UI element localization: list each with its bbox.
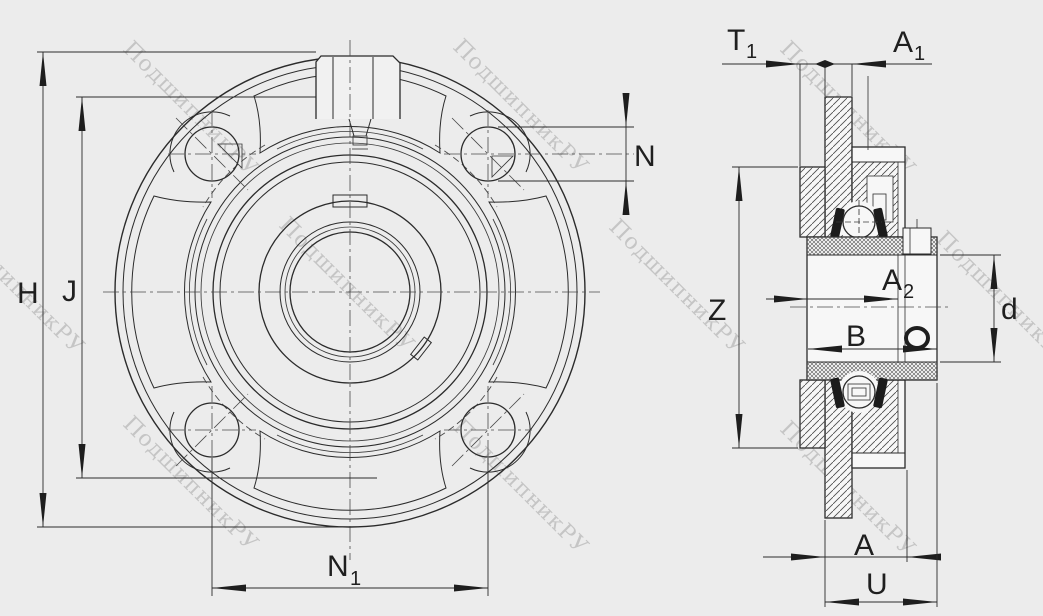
dim-label-A1: A: [893, 26, 913, 59]
dim-label-N1: N: [327, 550, 349, 583]
dim-label-A: A: [854, 529, 874, 562]
watermark-text: ПодшипникРУ: [448, 35, 593, 180]
watermark-text: ПодшипникРУ: [118, 412, 263, 557]
dim-label-U: U: [866, 568, 888, 601]
watermark-text: ПодшипникРУ: [448, 415, 593, 560]
watermark-text: ПодшипникРУ: [604, 215, 749, 360]
chamfer-mark: [492, 156, 513, 177]
dim-label-H: H: [17, 277, 39, 310]
set-screw-collar: [903, 228, 931, 254]
dim-label-T1-sub: 1: [746, 41, 757, 63]
dim-label-d: d: [1001, 293, 1018, 326]
dim-label-J: J: [62, 275, 77, 308]
drawing-canvas: ПодшипникРУ ПодшипникРУ ПодшипникРУ Подш…: [0, 0, 1043, 616]
dim-label-Z: Z: [708, 294, 726, 327]
watermark-text: ПодшипникРУ: [118, 37, 263, 182]
dim-label-A1-sub: 1: [914, 43, 925, 65]
set-screw-hole: [906, 328, 928, 348]
grease-boss: [316, 56, 400, 149]
dim-label-N1-sub: 1: [350, 568, 361, 590]
dim-label-A2-sub: 2: [903, 281, 914, 303]
watermark-text: ПодшипникРУ: [931, 227, 1043, 372]
dim-label-A2: A: [882, 264, 902, 297]
dim-label-N: N: [634, 140, 656, 173]
dim-label-B: B: [846, 320, 866, 353]
technical-drawing: ПодшипникРУ ПодшипникРУ ПодшипникРУ Подш…: [0, 0, 1043, 616]
lock-screw-bottom: [848, 384, 870, 400]
dim-label-T1: T: [727, 24, 745, 57]
